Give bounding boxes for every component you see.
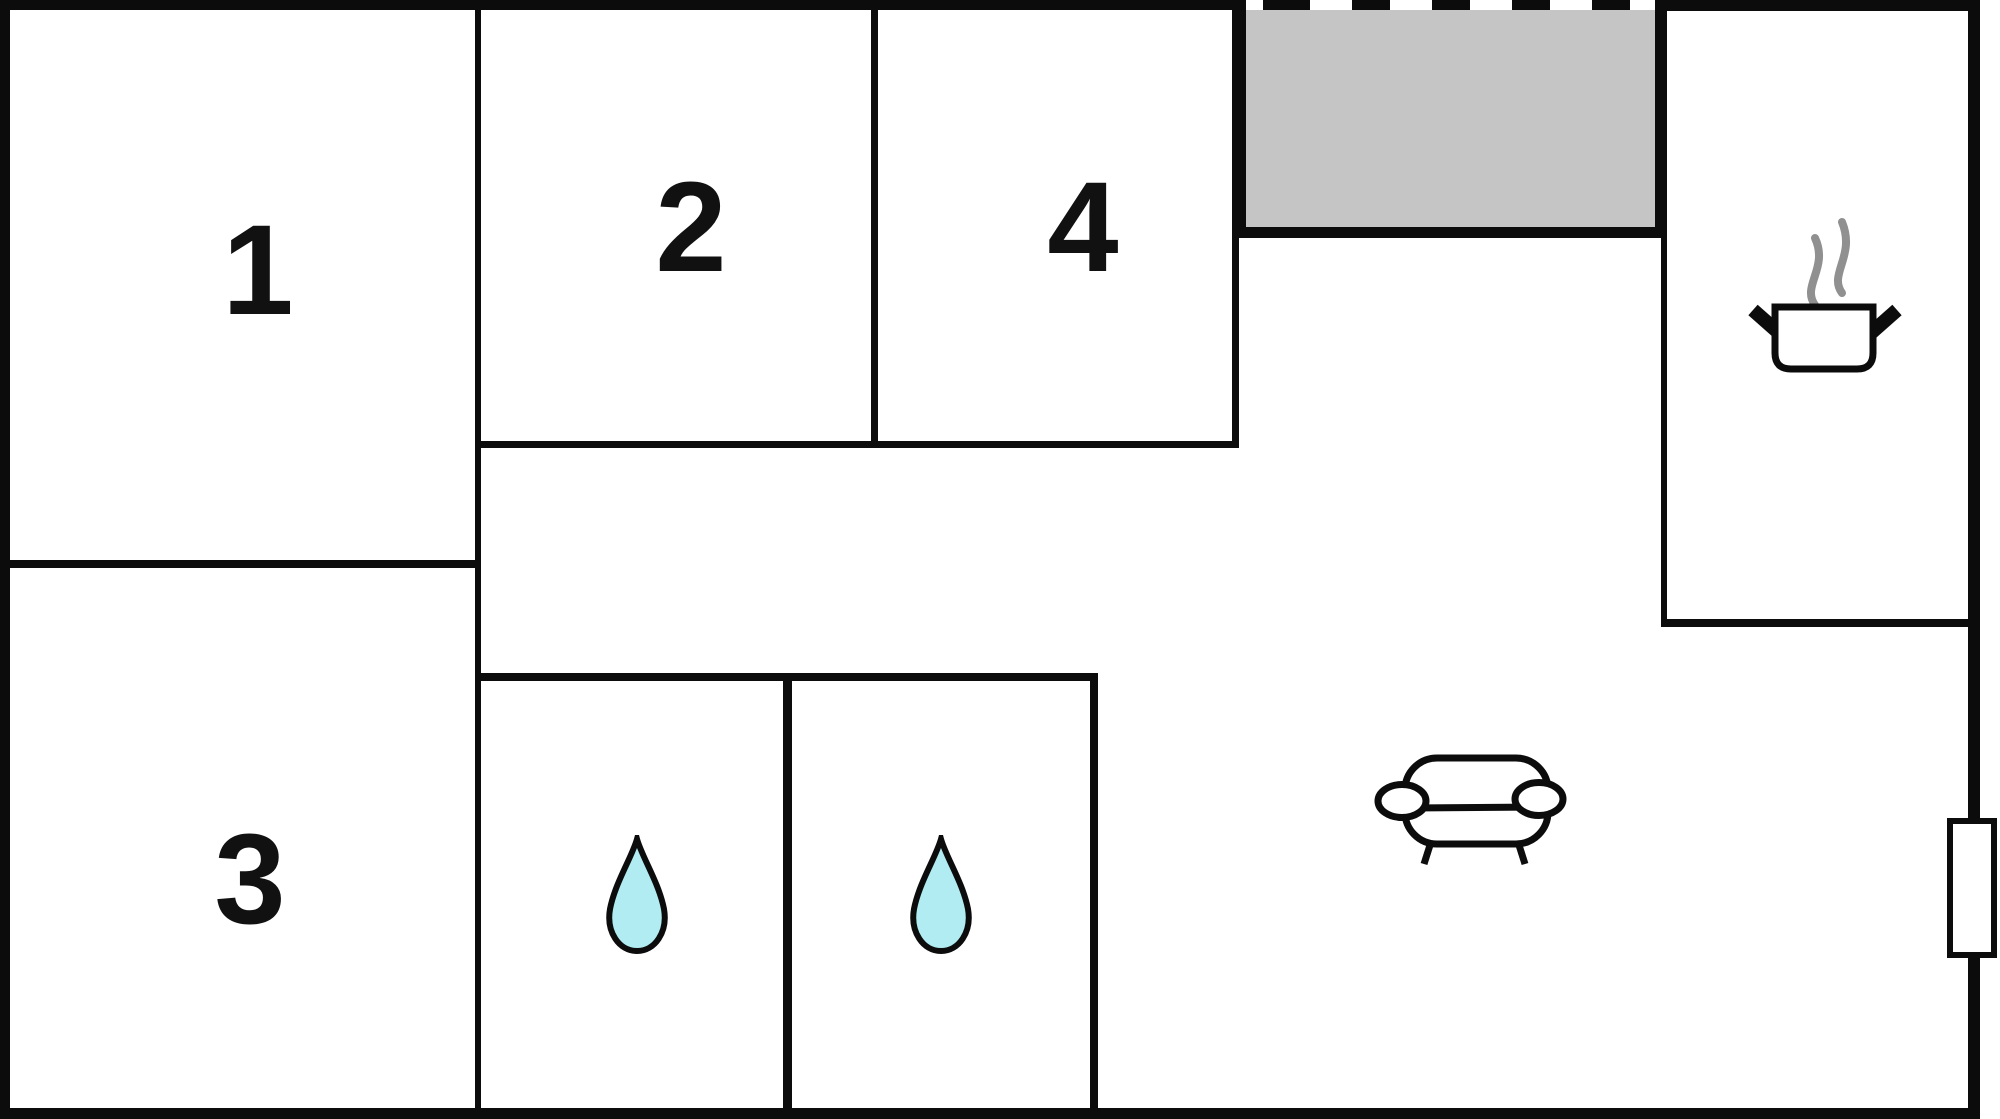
wall-rooms24-bottom [481, 441, 1239, 448]
steam-line [1811, 238, 1819, 305]
cooking-pot-steam-icon [1745, 210, 1905, 380]
outer-wall-left [0, 0, 10, 1119]
terrace-wall-right [1655, 10, 1667, 238]
terrace-wall-left [1232, 10, 1246, 238]
sofa-icon [1372, 753, 1572, 868]
water-drop-icon [603, 835, 671, 955]
window-door-marker [1947, 818, 1997, 958]
floor-plan: 1 2 3 4 [0, 0, 2000, 1119]
wall-room1-room3-divider [10, 560, 481, 568]
dashed-open-edge [1246, 0, 1655, 10]
kitchen-wall-left [1661, 238, 1667, 627]
water-drop-icon [907, 835, 975, 955]
outer-wall-top-left-segment [0, 0, 1246, 10]
wall-rooms13-right [475, 10, 481, 1108]
terrace-wall-bottom [1232, 227, 1667, 238]
steam-line [1838, 222, 1846, 293]
room-2-label: 2 [655, 164, 726, 292]
terrace-area [1246, 10, 1655, 227]
bathrooms-wall-right [1090, 673, 1098, 1108]
outer-wall-bottom [0, 1108, 1980, 1119]
outer-wall-top-right-segment [1655, 0, 1980, 11]
room-4-label: 4 [1047, 164, 1118, 292]
room-1-label: 1 [222, 207, 293, 335]
bathrooms-wall-divider [783, 673, 792, 1108]
room-3-label: 3 [214, 816, 285, 944]
kitchen-wall-bottom [1661, 619, 1980, 627]
wall-room2-room4-divider [871, 10, 878, 448]
